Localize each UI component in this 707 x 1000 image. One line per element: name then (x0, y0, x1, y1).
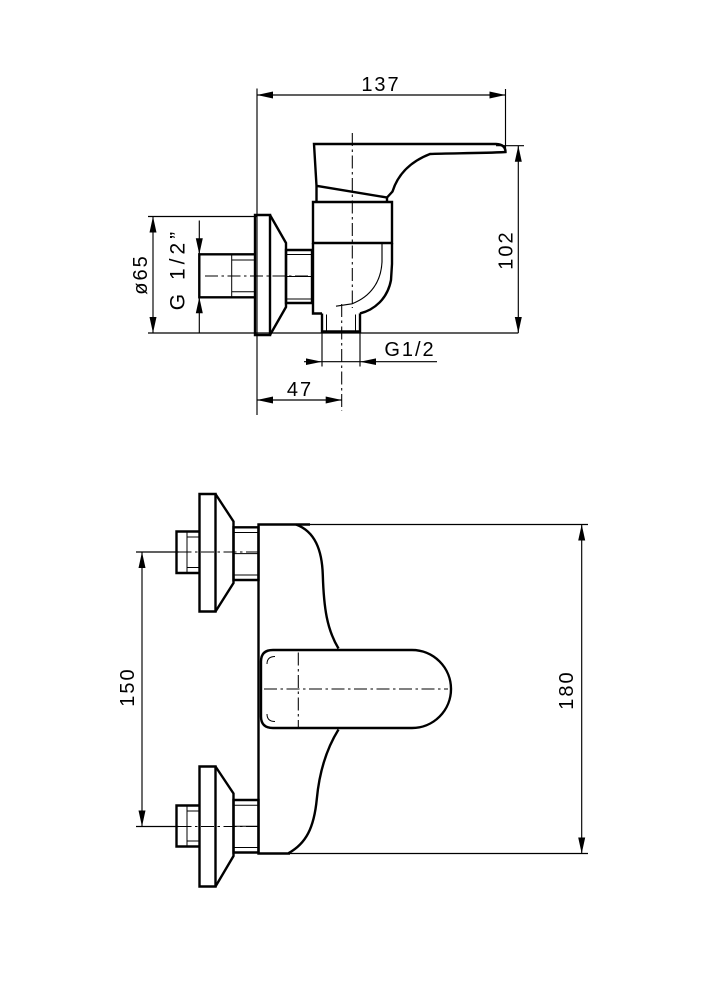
outlet-pipe (322, 313, 360, 331)
escutcheon-cone (216, 494, 234, 612)
dimension-overall-height-180: 180 (556, 525, 585, 854)
dimension-escutcheon-diameter: ø65 (130, 217, 157, 334)
centerlines (205, 133, 352, 411)
escutcheon-cone (270, 215, 286, 335)
dim-102-label: 102 (496, 230, 518, 269)
centerlines (179, 552, 449, 827)
escutcheon (255, 215, 286, 335)
shower-mixer-drawing: 137 102 ø65 G 1/2” G1/2 (0, 0, 707, 1000)
escutcheon (200, 494, 216, 612)
dim-outlet-thread-label: G1/2 (384, 339, 435, 361)
nut-facets (286, 255, 312, 300)
lever-handle (314, 144, 506, 202)
front-view: 150 180 (117, 494, 588, 887)
dim-47-label: 47 (287, 379, 313, 401)
dim-137-label: 137 (361, 74, 400, 96)
dimension-width-137: 137 (257, 74, 506, 99)
extension-lines (148, 89, 524, 416)
side-view: 137 102 ø65 G 1/2” G1/2 (130, 74, 524, 415)
body-inner-contour (336, 243, 382, 306)
dim-180-label: 180 (556, 670, 578, 709)
dimension-outlet-thread: G1/2 (304, 339, 437, 365)
dim-diameter-65-label: ø65 (130, 254, 152, 294)
body-right-lower-curve (289, 730, 339, 854)
dim-inlet-thread-label: G 1/2” (167, 228, 190, 310)
dimension-outlet-offset-47: 47 (257, 379, 342, 404)
mounting-nut (286, 250, 312, 303)
outlet-thread-lines (327, 315, 356, 331)
technical-drawing-sheet: 137 102 ø65 G 1/2” G1/2 (0, 0, 707, 1000)
body-right-upper-curve (296, 525, 339, 649)
top-inlet-connector (177, 494, 259, 612)
nut-facets (234, 533, 259, 576)
dimension-inlet-spacing-150: 150 (117, 552, 146, 827)
dimension-height-102: 102 (496, 146, 522, 333)
dim-150-label: 150 (117, 667, 139, 706)
nut-facets (234, 805, 259, 847)
dimension-inlet-thread: G 1/2” (167, 221, 203, 333)
